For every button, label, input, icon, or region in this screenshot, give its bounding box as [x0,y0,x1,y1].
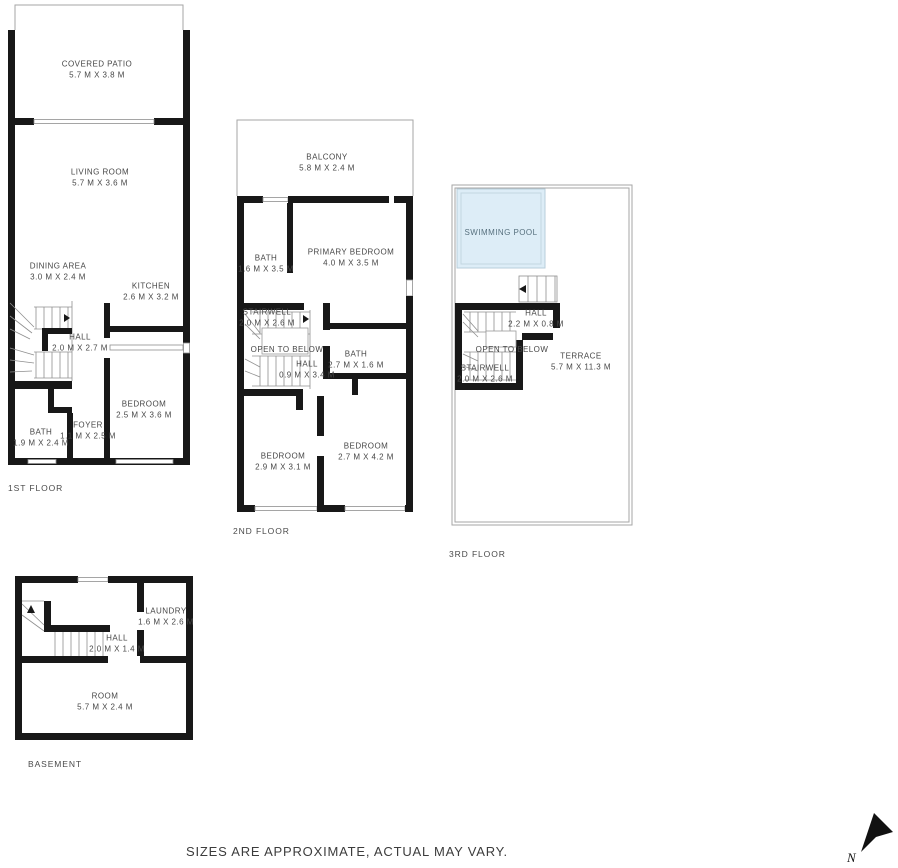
room-name: OPEN TO BELOW [251,345,324,356]
floor-label-3rd: 3RD FLOOR [449,549,506,559]
room-name: LAUNDRY [138,607,194,618]
room-name: BATH [328,350,384,361]
room-dims: 1.9 M X 2.4 M [13,438,69,449]
floor-label-basement: BASEMENT [28,759,82,769]
room-dims: 0.9 M X 3.4 M [279,370,335,381]
room-name: HALL [89,634,145,645]
room-dims: 1.6 M X 2.6 M [138,617,194,628]
size-disclaimer: SIZES ARE APPROXIMATE, ACTUAL MAY VARY. [186,844,508,859]
room-name: STAIRWELL [239,308,295,319]
room-name: BALCONY [299,153,355,164]
room-label-bedroom-1st: BEDROOM 2.5 M X 3.6 M [116,400,172,421]
room-label-primary-bedroom: PRIMARY BEDROOM 4.0 M X 3.5 M [308,248,394,269]
room-label-bedroom-2nd-left: BEDROOM 2.9 M X 3.1 M [255,452,311,473]
room-label-open-to-below-3rd: OPEN TO BELOW [476,345,549,356]
floor-label-1st: 1ST FLOOR [8,483,63,493]
room-dims: 4.0 M X 3.5 M [308,258,394,269]
room-label-balcony: BALCONY 5.8 M X 2.4 M [299,153,355,174]
room-label-kitchen: KITCHEN 2.6 M X 3.2 M [123,282,179,303]
room-label-bath-1st: BATH 1.9 M X 2.4 M [13,428,69,449]
room-dims: 3.0 M X 2.4 M [30,272,87,283]
compass-north-label: N [846,850,857,865]
room-name: BEDROOM [338,442,394,453]
room-dims: 5.8 M X 2.4 M [299,163,355,174]
room-label-living-room: LIVING ROOM 5.7 M X 3.6 M [71,168,129,189]
room-dims: 5.7 M X 3.8 M [62,70,132,81]
room-name: SWIMMING POOL [465,228,538,239]
room-name: HALL [52,333,108,344]
room-dims: 2.2 M X 0.8 M [508,319,564,330]
room-name: DINING AREA [30,262,87,273]
room-label-swimming-pool: SWIMMING POOL [465,228,538,239]
room-dims: 2.5 M X 3.6 M [116,410,172,421]
room-name: KITCHEN [123,282,179,293]
room-label-hall-3rd: HALL 2.2 M X 0.8 M [508,309,564,330]
room-dims: 5.7 M X 11.3 M [551,362,611,373]
room-label-laundry: LAUNDRY 1.6 M X 2.6 M [138,607,194,628]
room-label-bath-2nd-left: BATH 1.6 M X 3.5 M [238,254,294,275]
room-name: BATH [13,428,69,439]
basement-plan-graphic [11,571,197,747]
room-label-covered-patio: COVERED PATIO 5.7 M X 3.8 M [62,60,132,81]
room-name: HALL [508,309,564,320]
room-name: BEDROOM [116,400,172,411]
north-arrow-icon: N [838,799,898,865]
room-label-stairwell-3rd: STAIRWELL 2.0 M X 2.6 M [457,364,513,385]
room-name: OPEN TO BELOW [476,345,549,356]
room-dims: 5.7 M X 2.4 M [77,702,133,713]
room-dims: 2.0 M X 1.4 M [89,644,145,655]
room-name: BATH [238,254,294,265]
room-dims: 2.6 M X 3.2 M [123,292,179,303]
room-dims: 5.7 M X 3.6 M [71,178,129,189]
room-name: PRIMARY BEDROOM [308,248,394,259]
room-dims: 2.0 M X 2.6 M [457,374,513,385]
room-name: BEDROOM [255,452,311,463]
room-label-hall-basement: HALL 2.0 M X 1.4 M [89,634,145,655]
room-label-bath-2nd-mid: BATH 2.7 M X 1.6 M [328,350,384,371]
room-name: LIVING ROOM [71,168,129,179]
room-dims: 2.7 M X 4.2 M [338,452,394,463]
room-dims: 2.7 M X 1.6 M [328,360,384,371]
room-label-hall-2nd: HALL 0.9 M X 3.4 M [279,360,335,381]
room-name: TERRACE [551,352,611,363]
room-dims: 2.0 M X 2.7 M [52,343,108,354]
room-dims: 1.6 M X 3.5 M [238,264,294,275]
room-label-room-basement: ROOM 5.7 M X 2.4 M [77,692,133,713]
room-dims: 2.9 M X 3.1 M [255,462,311,473]
room-dims: 2.0 M X 2.6 M [239,318,295,329]
room-label-dining-area: DINING AREA 3.0 M X 2.4 M [30,262,87,283]
room-label-terrace: TERRACE 5.7 M X 11.3 M [551,352,611,373]
room-label-open-to-below-2nd: OPEN TO BELOW [251,345,324,356]
room-name: COVERED PATIO [62,60,132,71]
floor-plan-page: COVERED PATIO 5.7 M X 3.8 M LIVING ROOM … [0,0,898,868]
room-name: HALL [279,360,335,371]
room-name: ROOM [77,692,133,703]
room-label-hall-1st: HALL 2.0 M X 2.7 M [52,333,108,354]
room-name: STAIRWELL [457,364,513,375]
floor-label-2nd: 2ND FLOOR [233,526,290,536]
room-label-stairwell-2nd: STAIRWELL 2.0 M X 2.6 M [239,308,295,329]
room-label-bedroom-2nd-right: BEDROOM 2.7 M X 4.2 M [338,442,394,463]
